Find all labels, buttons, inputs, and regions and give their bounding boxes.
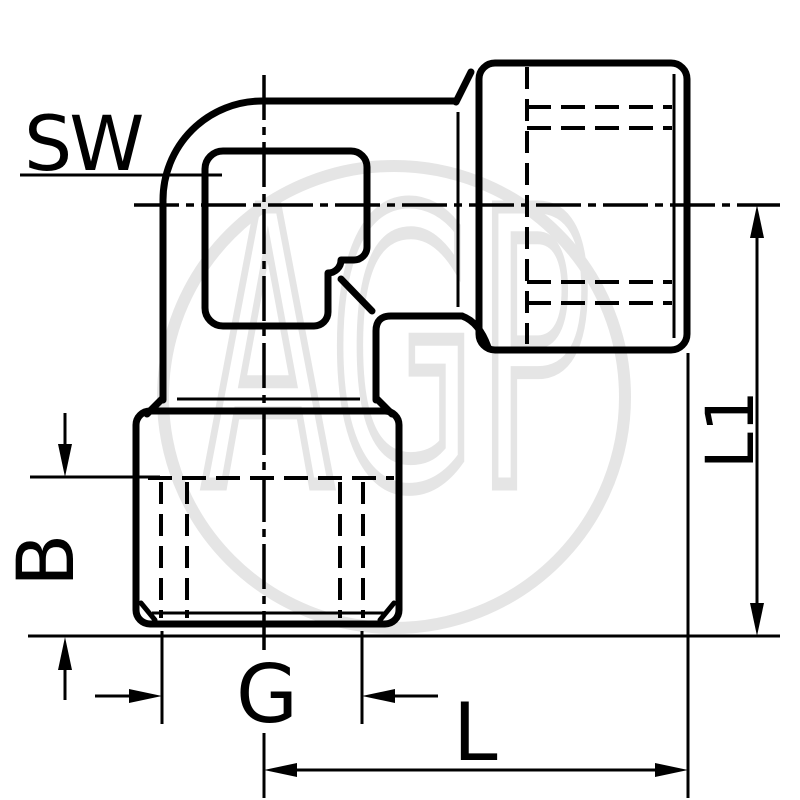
b-arrow-up [58, 637, 72, 670]
l-arrow-right [655, 763, 688, 777]
label-g: G [236, 648, 298, 741]
label-l: L [453, 686, 498, 779]
b-arrow-down [58, 444, 72, 477]
dimension-l1: L1 [692, 205, 769, 636]
dimension-g: G [95, 631, 438, 741]
g-arrow-right [129, 689, 162, 703]
elbow-fitting-drawing: AGP [0, 0, 800, 800]
g-arrow-left [362, 689, 395, 703]
l1-arrow-up [750, 205, 764, 238]
l1-arrow-down [750, 603, 764, 636]
technical-drawing-page: AGP [0, 0, 800, 800]
label-b: B [2, 533, 92, 587]
label-l1: L1 [692, 390, 769, 469]
right-flare-top [456, 72, 471, 102]
l-arrow-left [264, 763, 297, 777]
label-sw: SW [24, 99, 142, 188]
dimension-sw: SW [20, 99, 222, 188]
